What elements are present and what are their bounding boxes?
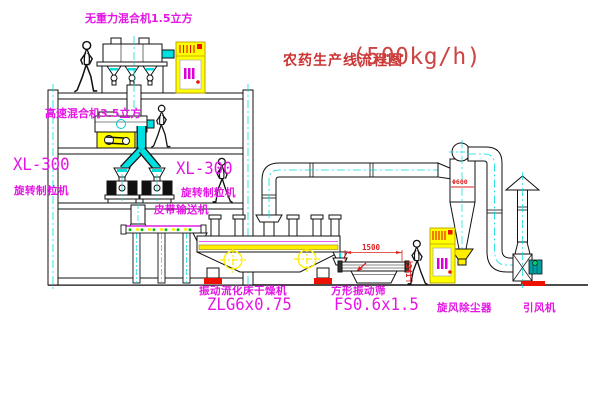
label-fan: 引风机 <box>523 303 556 314</box>
vibrating-screen <box>333 250 413 283</box>
dimension-screen-height: 341 <box>405 264 413 278</box>
control-cabinet-1 <box>176 42 205 93</box>
exhaust-duct <box>256 163 448 222</box>
label-high-speed-mixer: 高速混合机3.5立方 <box>45 108 142 119</box>
granulator-units <box>105 174 174 203</box>
label-granulator-right-model: XL-300 <box>176 161 233 178</box>
granulator-right-unit <box>140 174 174 203</box>
flow-diagram-canvas: 农药生产线流程图 (500kg/h) 无重力混合机1.5立方 高速混合机3.5立… <box>0 0 600 403</box>
worker-roof <box>74 42 97 92</box>
diagram-title-capacity: (500kg/h) <box>352 46 481 69</box>
label-screen-model: FS0.6x1.5 <box>334 297 419 314</box>
fluid-bed-dryer <box>193 215 347 284</box>
mixer-discharge-valves <box>107 66 157 85</box>
label-granulator-right-name: 旋转制粒机 <box>181 188 236 199</box>
granulator-left-unit <box>105 174 139 203</box>
fan-base <box>521 281 545 286</box>
label-granulator-left-name: 旋转制粒机 <box>14 186 69 197</box>
mixer-side-pipe <box>162 50 174 58</box>
label-cyclone: 旋风除尘器 <box>437 303 492 314</box>
label-dryer-model: ZLG6x0.75 <box>207 297 292 314</box>
label-gravity-mixer: 无重力混合机1.5立方 <box>85 13 193 24</box>
dimension-screen-length: 1500 <box>362 244 380 252</box>
control-cabinet-2 <box>430 228 455 283</box>
label-belt-conveyor: 皮带输送机 <box>154 205 209 216</box>
mixer-outlet <box>147 120 154 128</box>
label-granulator-left-model: XL-300 <box>13 157 70 174</box>
dimension-cyclone-inlet: Φ600 <box>452 179 468 186</box>
